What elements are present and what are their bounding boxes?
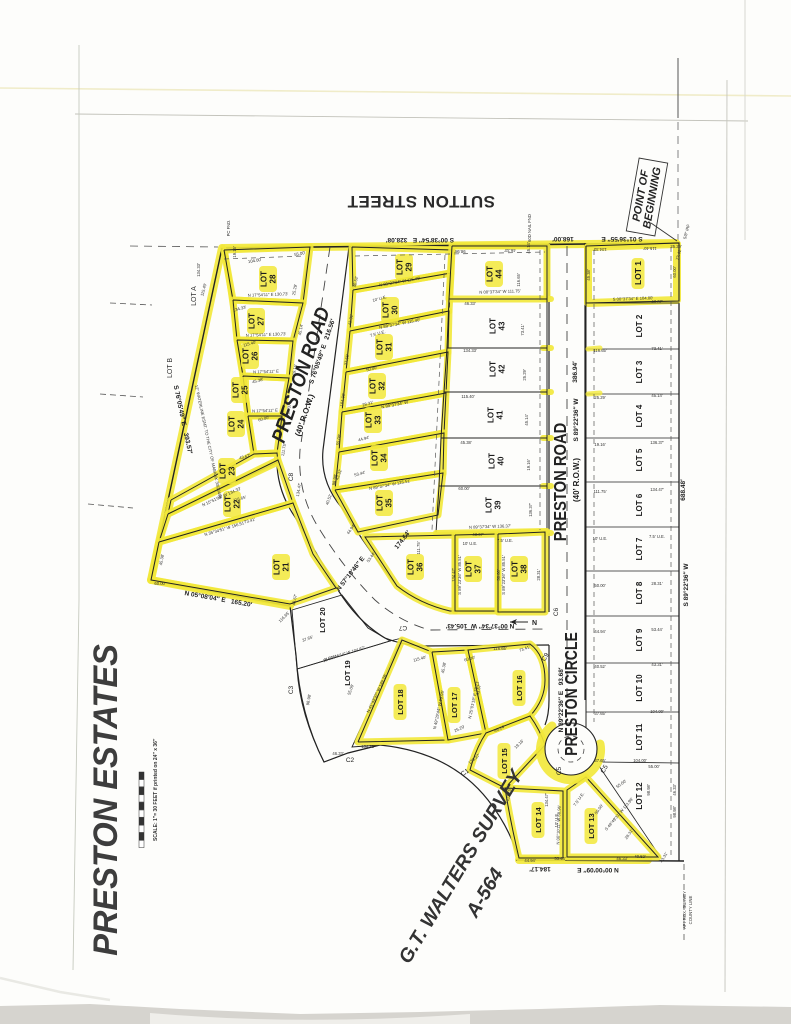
- svg-text:10′ U.E.: 10′ U.E.: [463, 541, 478, 546]
- svg-text:19.16′: 19.16′: [594, 442, 605, 447]
- svg-text:134.33′: 134.33′: [196, 263, 201, 277]
- svg-text:N: N: [532, 620, 537, 627]
- svg-text:N 00°37′34″ W 105.43′: N 00°37′34″ W 105.43′: [445, 622, 514, 630]
- svg-text:136.37′: 136.37′: [528, 503, 533, 517]
- svg-text:LOT A: LOT A: [191, 286, 198, 306]
- svg-text:115.40′: 115.40′: [461, 394, 474, 399]
- svg-text:116.65′: 116.65′: [516, 273, 521, 286]
- svg-text:N 89°22′36″ E 93.68′: N 89°22′36″ E 93.68′: [557, 667, 565, 732]
- svg-text:43.31′: 43.31′: [651, 662, 662, 667]
- svg-text:98.98′: 98.98′: [672, 806, 677, 817]
- svg-text:S 01°36′55″ E: S 01°36′55″ E: [601, 235, 643, 243]
- svg-text:C6: C6: [553, 607, 560, 616]
- svg-text:25.29′: 25.29′: [522, 369, 527, 380]
- svg-text:19.16′: 19.16′: [526, 459, 531, 470]
- svg-text:53.44′: 53.44′: [554, 856, 565, 861]
- svg-text:S 89°22′36″ W: S 89°22′36″ W: [572, 398, 580, 442]
- svg-text:LOT 11: LOT 11: [635, 723, 644, 750]
- svg-text:55.00′: 55.00′: [648, 764, 659, 769]
- svg-text:115.40′: 115.40′: [643, 246, 656, 251]
- svg-text:LOT 2: LOT 2: [635, 314, 644, 337]
- svg-text:25.29′: 25.29′: [670, 244, 681, 249]
- svg-text:LOT 12: LOT 12: [635, 782, 644, 810]
- svg-text:SCALE: 1″= 30 FEET if printed: SCALE: 1″= 30 FEET if printed on 24″ x 3…: [153, 738, 159, 841]
- svg-text:LOT 13: LOT 13: [587, 813, 596, 838]
- svg-text:134.33′: 134.33′: [361, 744, 375, 749]
- svg-text:7.5′ U.E.: 7.5′ U.E.: [649, 534, 665, 539]
- svg-text:S 00°38′54″ E 328.08′: S 00°38′54″ E 328.08′: [386, 236, 455, 244]
- svg-text:116.65′: 116.65′: [593, 348, 606, 353]
- svg-text:N 00°00′09″ E: N 00°00′09″ E: [577, 866, 619, 874]
- svg-text:C3: C3: [288, 685, 295, 694]
- svg-text:C2: C2: [346, 757, 355, 764]
- svg-text:N 17°54′11″ E: N 17°54′11″ E: [253, 369, 279, 375]
- svg-text:104.00′: 104.00′: [650, 709, 664, 714]
- svg-text:APPROX. SURVEY: APPROX. SURVEY: [682, 891, 687, 929]
- svg-text:45.14′: 45.14′: [524, 414, 529, 425]
- svg-text:46.33′: 46.33′: [672, 784, 677, 795]
- svg-text:45.38′: 45.38′: [460, 440, 471, 445]
- svg-text:46.33′: 46.33′: [464, 301, 475, 306]
- svg-text:PC FND.: PC FND.: [226, 220, 231, 237]
- svg-text:LOT 1: LOT 1: [633, 261, 643, 285]
- svg-text:386.94′: 386.94′: [572, 361, 579, 383]
- svg-text:73.41′: 73.41′: [651, 346, 662, 351]
- svg-text:40.52′: 40.52′: [634, 854, 645, 859]
- svg-text:134.33′: 134.33′: [593, 247, 607, 252]
- svg-text:S 89°22′36″ W: S 89°22′36″ W: [682, 563, 690, 607]
- svg-text:37.65′: 37.65′: [594, 758, 605, 763]
- svg-text:60.00′: 60.00′: [154, 581, 165, 586]
- svg-text:LOT 7: LOT 7: [635, 537, 644, 560]
- svg-text:LOT 5: LOT 5: [635, 448, 644, 471]
- svg-text:COUNTY LINE: COUNTY LINE: [688, 895, 693, 924]
- svg-text:PRESTON ROAD: PRESTON ROAD: [551, 423, 571, 542]
- svg-text:S 89°23′36″ W 85.51′: S 89°23′36″ W 85.51′: [457, 555, 462, 595]
- svg-text:LOT 9: LOT 9: [635, 628, 644, 651]
- svg-text:134.47′: 134.47′: [650, 487, 664, 492]
- svg-text:46.33′: 46.33′: [616, 856, 627, 861]
- svg-text:98.98′: 98.98′: [646, 784, 651, 795]
- svg-text:40.52′: 40.52′: [594, 664, 605, 669]
- svg-text:LOT 17: LOT 17: [450, 692, 459, 717]
- svg-text:45.38′: 45.38′: [586, 269, 591, 280]
- svg-text:C5: C5: [556, 766, 563, 775]
- svg-text:50.00′: 50.00′: [594, 583, 605, 588]
- svg-text:111.75′: 111.75′: [594, 489, 607, 494]
- svg-text:LOT 18: LOT 18: [396, 689, 405, 714]
- svg-text:C8: C8: [288, 472, 295, 481]
- svg-text:46.33′: 46.33′: [504, 248, 515, 253]
- svg-text:184.17′: 184.17′: [529, 865, 551, 872]
- svg-text:45.14′: 45.14′: [651, 393, 662, 398]
- svg-text:44.94′: 44.94′: [594, 629, 605, 634]
- svg-text:LOT 14: LOT 14: [534, 806, 543, 832]
- svg-text:60.00′: 60.00′: [672, 266, 677, 277]
- svg-text:LOT 19: LOT 19: [343, 660, 352, 685]
- svg-text:LOT 10: LOT 10: [635, 674, 644, 702]
- svg-text:C7: C7: [398, 624, 407, 631]
- svg-text:7.5′ U.E.: 7.5′ U.E.: [497, 538, 513, 543]
- svg-text:60.00′: 60.00′: [458, 486, 469, 491]
- svg-text:60D NAIL FND: 60D NAIL FND: [527, 214, 532, 242]
- svg-text:73.41′: 73.41′: [520, 324, 525, 335]
- svg-text:LOT 8: LOT 8: [635, 581, 644, 604]
- svg-text:LOT 16: LOT 16: [515, 675, 524, 700]
- svg-text:10′ U.E.: 10′ U.E.: [593, 536, 608, 541]
- svg-text:LOT B: LOT B: [167, 358, 174, 378]
- svg-text:PRESTON ESTATES: PRESTON ESTATES: [87, 644, 125, 956]
- svg-text:98.98′: 98.98′: [454, 249, 465, 254]
- svg-text:LOT 4: LOT 4: [635, 404, 644, 427]
- svg-text:LOT 3: LOT 3: [635, 360, 644, 383]
- svg-text:LOT 20: LOT 20: [318, 607, 327, 632]
- svg-text:136.37′: 136.37′: [650, 440, 664, 445]
- svg-text:37.65′: 37.65′: [594, 711, 605, 716]
- svg-text:116.65′: 116.65′: [493, 646, 506, 651]
- svg-text:28.31′: 28.31′: [651, 581, 662, 586]
- svg-text:44.94′: 44.94′: [524, 858, 535, 863]
- svg-text:134.47′: 134.47′: [451, 568, 456, 582]
- svg-text:19.16′: 19.16′: [232, 246, 237, 257]
- svg-text:168.00′: 168.00′: [552, 235, 574, 242]
- svg-text:104.00′: 104.00′: [633, 758, 647, 763]
- svg-text:S 89°23′36″ W 85.51′: S 89°23′36″ W 85.51′: [501, 555, 506, 595]
- svg-text:111.75′: 111.75′: [416, 541, 421, 554]
- svg-text:53.44′: 53.44′: [651, 627, 662, 632]
- svg-text:688.48′: 688.48′: [680, 479, 687, 501]
- svg-text:25.29′: 25.29′: [594, 395, 605, 400]
- svg-text:LOT 6: LOT 6: [635, 493, 644, 516]
- svg-text:43.67′: 43.67′: [472, 532, 483, 537]
- svg-text:N 17°54′11″ E: N 17°54′11″ E: [252, 408, 278, 414]
- svg-text:SUTTON STREET: SUTTON STREET: [347, 192, 495, 211]
- svg-text:134.47′: 134.47′: [544, 793, 549, 807]
- svg-text:28.31′: 28.31′: [536, 569, 541, 580]
- svg-text:(40’ R.O.W.): (40’ R.O.W.): [572, 458, 581, 502]
- svg-text:134.33′: 134.33′: [463, 348, 477, 353]
- svg-text:46.33′: 46.33′: [332, 751, 343, 756]
- svg-text:45.14′: 45.14′: [526, 242, 531, 253]
